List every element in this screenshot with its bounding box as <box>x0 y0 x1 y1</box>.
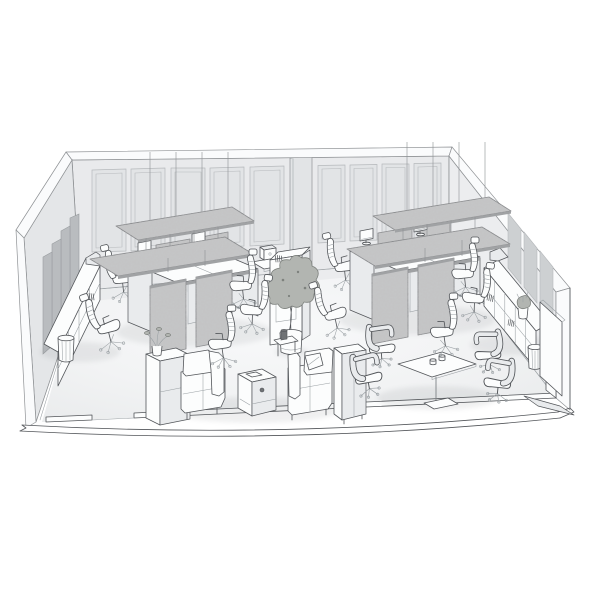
waste-basket <box>58 335 74 362</box>
knob <box>260 388 264 392</box>
sofa-right <box>288 348 333 420</box>
render-canvas <box>0 0 600 600</box>
office-3d-render <box>0 0 600 600</box>
cup <box>439 355 445 361</box>
cup <box>430 359 436 365</box>
coffee-table <box>238 369 276 416</box>
